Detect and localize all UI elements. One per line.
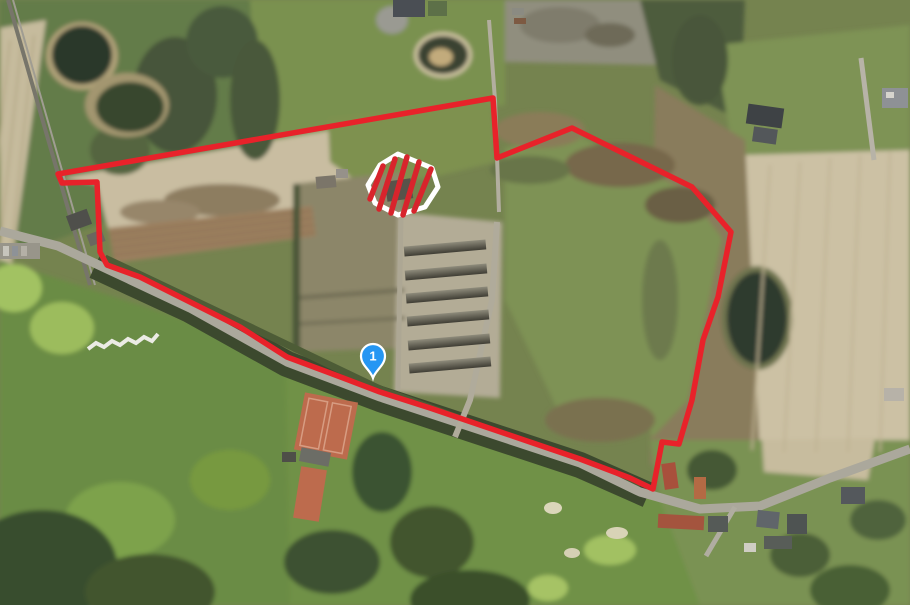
- sand-bunker: [564, 548, 580, 558]
- satellite-map[interactable]: 1: [0, 0, 910, 605]
- pond-east: [727, 272, 787, 364]
- sand-bunker: [606, 527, 628, 539]
- pond-northwest: [52, 26, 112, 84]
- marker-label: 1: [369, 349, 376, 364]
- map-viewport[interactable]: 1: [0, 0, 910, 605]
- sand-bunker: [544, 502, 562, 514]
